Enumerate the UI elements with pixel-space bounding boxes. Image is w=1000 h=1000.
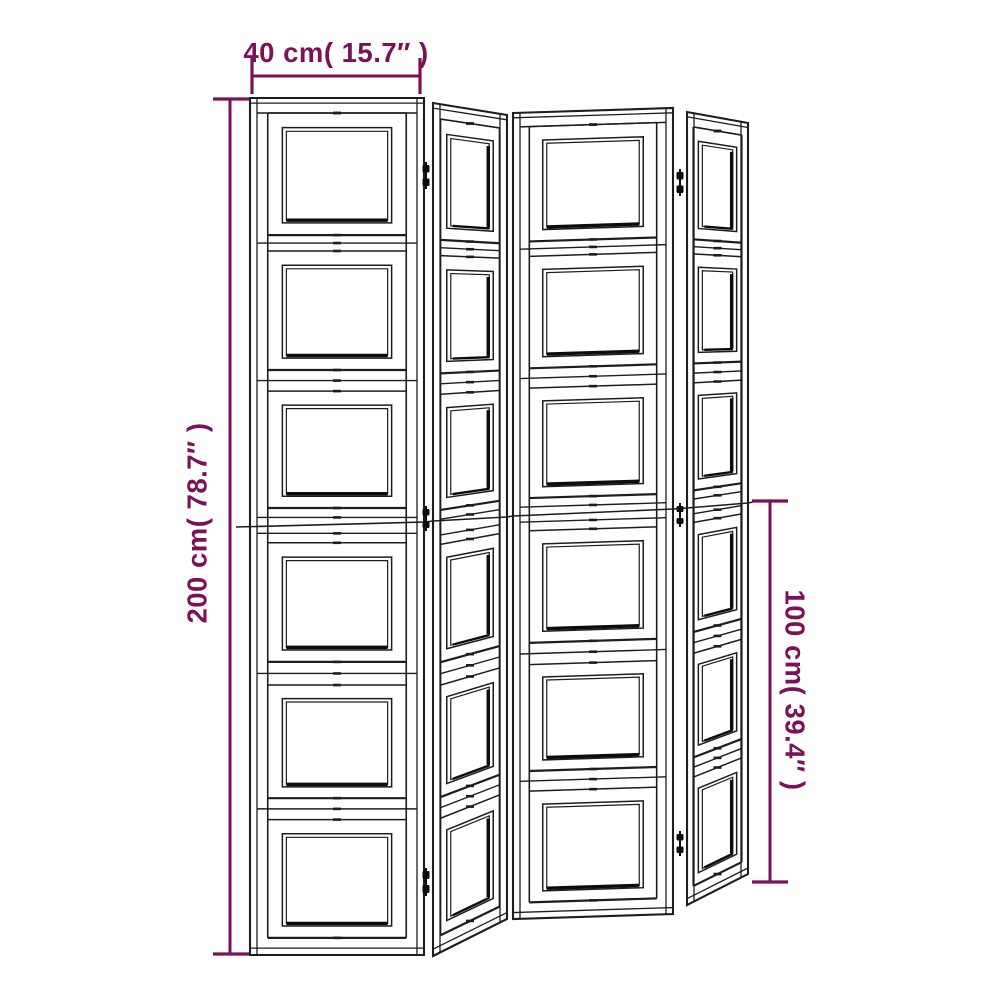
rail-peg xyxy=(589,661,597,664)
rail-peg xyxy=(589,253,597,256)
rail-peg xyxy=(333,532,341,535)
rail-peg xyxy=(466,805,474,808)
rail-peg xyxy=(589,519,597,522)
rail-peg xyxy=(589,899,597,902)
hinge-icon xyxy=(677,831,684,856)
rail-peg xyxy=(714,247,722,250)
rail-peg xyxy=(589,768,597,771)
rail-peg xyxy=(466,240,474,243)
rail-peg xyxy=(589,385,597,388)
panel-3 xyxy=(513,108,673,919)
rail-peg xyxy=(714,130,722,133)
hinge-icon xyxy=(677,503,684,527)
rail-peg xyxy=(714,747,722,750)
rail-peg xyxy=(714,361,722,364)
rail-peg xyxy=(589,640,597,643)
rail-peg xyxy=(714,645,722,648)
rail-peg xyxy=(714,240,722,243)
rail-peg xyxy=(466,513,474,516)
rail-peg xyxy=(333,672,341,675)
fold-midline xyxy=(236,502,753,527)
rail-peg xyxy=(466,664,474,667)
rail-peg xyxy=(466,538,474,541)
height-dimension-label: 200 cm( 78.7″ ) xyxy=(182,422,213,623)
divider-panels xyxy=(250,98,748,956)
rail-peg xyxy=(466,256,474,259)
panel-2 xyxy=(433,103,507,956)
hinge-icon xyxy=(677,169,684,196)
rail-peg xyxy=(333,242,341,245)
rail-peg xyxy=(466,675,474,678)
rail-peg xyxy=(466,529,474,532)
rail-peg xyxy=(589,650,597,653)
rail-peg xyxy=(466,122,474,125)
rail-peg xyxy=(333,507,341,510)
rail-peg xyxy=(333,516,341,519)
room-divider-dimension-diagram: 40 cm( 15.7″ ) 200 cm( 78.7″ ) 100 cm( 3… xyxy=(0,0,1000,1000)
rail-peg xyxy=(466,920,474,923)
rail-peg xyxy=(589,123,597,126)
rail-peg xyxy=(333,808,341,811)
rail-peg xyxy=(333,234,341,237)
rail-peg xyxy=(589,246,597,249)
rail-peg xyxy=(714,757,722,760)
rail-peg xyxy=(714,873,722,876)
rail-peg xyxy=(466,248,474,251)
rail-peg xyxy=(466,391,474,394)
rail-peg xyxy=(589,504,597,507)
rail-peg xyxy=(466,653,474,656)
rail-peg xyxy=(466,381,474,384)
rail-peg xyxy=(714,508,722,511)
rail-peg xyxy=(714,486,722,489)
rail-peg xyxy=(333,369,341,372)
rail-peg xyxy=(714,624,722,627)
rail-peg xyxy=(589,788,597,791)
rail-peg xyxy=(333,684,341,687)
half-height-dimension: 100 cm( 39.4″ ) xyxy=(752,501,811,882)
half-height-dimension-label: 100 cm( 39.4″ ) xyxy=(780,589,811,790)
rail-peg xyxy=(333,937,341,940)
rail-peg xyxy=(333,818,341,821)
panel-4 xyxy=(687,112,748,905)
rail-peg xyxy=(589,495,597,498)
rail-peg xyxy=(714,494,722,497)
rail-peg xyxy=(333,379,341,382)
rail-peg xyxy=(589,778,597,781)
rail-peg xyxy=(714,254,722,257)
rail-peg xyxy=(333,390,341,393)
rail-peg xyxy=(589,528,597,531)
rail-peg xyxy=(714,517,722,520)
rail-peg xyxy=(466,795,474,798)
rail-peg xyxy=(589,365,597,368)
rail-peg xyxy=(333,112,341,115)
rail-peg xyxy=(714,766,722,769)
dimension-diagram-canvas: 40 cm( 15.7″ ) 200 cm( 78.7″ ) 100 cm( 3… xyxy=(0,0,1000,1000)
width-dimension: 40 cm( 15.7″ ) xyxy=(243,37,428,94)
rail-peg xyxy=(333,661,341,664)
rail-peg xyxy=(333,541,341,544)
fold-midline-path xyxy=(236,502,753,527)
rail-peg xyxy=(333,250,341,253)
rail-peg xyxy=(466,785,474,788)
rail-peg xyxy=(466,371,474,374)
width-dimension-label: 40 cm( 15.7″ ) xyxy=(243,37,428,68)
rail-peg xyxy=(714,371,722,374)
rail-peg xyxy=(714,635,722,638)
rail-peg xyxy=(714,380,722,383)
rail-peg xyxy=(333,797,341,800)
rail-peg xyxy=(589,375,597,378)
rail-peg xyxy=(589,238,597,241)
rail-peg xyxy=(466,504,474,507)
